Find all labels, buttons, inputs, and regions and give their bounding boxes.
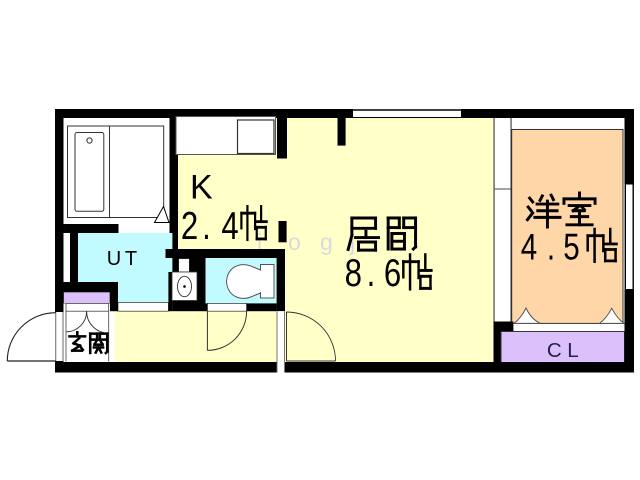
svg-text:C: C	[547, 339, 562, 362]
svg-text:.: .	[367, 252, 376, 295]
svg-text:K: K	[190, 169, 213, 207]
svg-text:4: 4	[521, 227, 537, 268]
svg-text:8: 8	[345, 252, 362, 295]
svg-text:6: 6	[384, 252, 401, 295]
svg-text:.: .	[202, 205, 211, 248]
svg-text:4: 4	[221, 205, 238, 248]
svg-text:T: T	[125, 248, 137, 270]
svg-text:g: g	[320, 229, 333, 255]
svg-text:2: 2	[181, 205, 198, 248]
svg-text:5: 5	[563, 227, 579, 268]
svg-text:U: U	[107, 248, 121, 270]
svg-text:.: .	[547, 227, 555, 268]
svg-text:o: o	[288, 229, 301, 255]
svg-text:L: L	[567, 339, 578, 362]
